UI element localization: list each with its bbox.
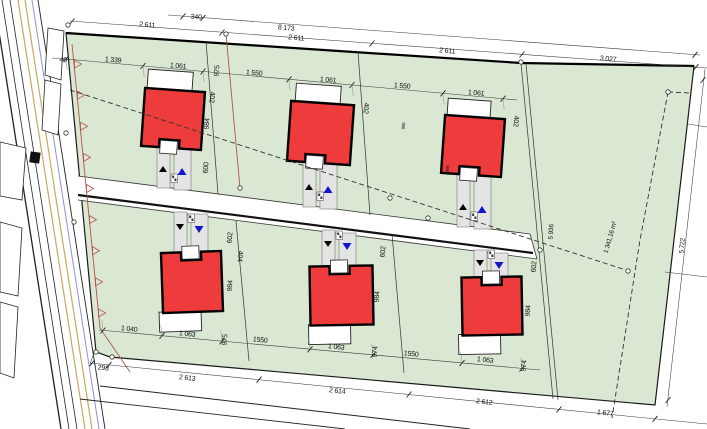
entrance-porch — [330, 260, 347, 273]
utility-box-dot — [318, 194, 320, 197]
utility-box-dot — [491, 255, 493, 258]
dimension-label: 984 — [374, 291, 382, 303]
entrance-porch — [160, 140, 178, 154]
survey-point — [64, 131, 68, 135]
dimension-label: 5 722 — [678, 237, 686, 253]
survey-point — [110, 355, 114, 359]
dimension-label: 2 611 — [288, 34, 305, 42]
dimension-label: 3 027 — [600, 55, 617, 63]
house — [461, 276, 522, 335]
dimension-label: 402 — [207, 91, 215, 103]
dimension-label: 1 339 — [105, 56, 122, 64]
dimension-label: 974 — [372, 346, 380, 358]
survey-point — [72, 220, 76, 224]
dimension-label: 975 — [214, 65, 222, 77]
dimension-label: 2 611 — [139, 21, 156, 29]
utility-box-dot — [191, 219, 193, 222]
utility-box-dot — [474, 217, 476, 220]
dimension-label: 600 — [203, 162, 211, 174]
survey-point — [224, 32, 228, 36]
utility-box-dot — [320, 197, 322, 200]
dimension-label: 402 — [361, 102, 369, 114]
dimension-label: 1 061 — [170, 62, 187, 70]
house — [309, 265, 373, 325]
survey-point — [519, 60, 523, 64]
dimension-label: 5 936 — [547, 223, 555, 239]
survey-point — [388, 196, 392, 200]
dimension-label: 1 550 — [246, 69, 263, 77]
utility-box — [317, 192, 324, 201]
neighbor-parcel — [42, 80, 61, 135]
dimension-label: 298 — [97, 364, 109, 372]
dimension-label: 984 — [227, 280, 235, 292]
utility-box-dot — [174, 179, 176, 182]
dimension-label: 340 — [190, 14, 202, 22]
survey-point — [238, 186, 242, 190]
utility-box-dot — [189, 216, 191, 219]
dimension-label: 975 — [222, 334, 230, 346]
utility-box-dot — [337, 233, 339, 236]
dimension-label: 2 611 — [439, 47, 456, 55]
garage — [458, 334, 500, 355]
dimension-label: 1 061 — [468, 89, 485, 97]
utility-box — [471, 212, 478, 221]
garage — [309, 324, 351, 345]
dimension-label: 985 — [401, 122, 407, 130]
dimension-label: 602 — [227, 232, 235, 244]
dimension-label: 974 — [521, 360, 529, 372]
house — [161, 251, 223, 313]
site-plan-drawing: 3408 1732 6112 6112 6113 027401 3391 061… — [0, 0, 707, 429]
dimension-label: 602 — [380, 246, 388, 258]
dimension-label: 985 — [445, 165, 451, 173]
house — [287, 101, 354, 165]
survey-point — [426, 216, 430, 220]
utility-box — [336, 231, 343, 240]
dimension-label: 1 061 — [320, 76, 337, 84]
survey-point — [94, 350, 98, 354]
entrance-porch — [182, 246, 199, 260]
survey-point — [626, 269, 630, 273]
neighbor-parcel — [45, 28, 64, 80]
dimension-label: 1 550 — [394, 82, 411, 90]
site-plan-page: 3408 1732 6112 6112 6113 027401 3391 061… — [0, 0, 707, 429]
survey-point — [538, 248, 542, 252]
dimension-label: 984 — [525, 305, 533, 317]
utility-box-dot — [489, 252, 491, 255]
dimension-label: 40 — [59, 57, 67, 65]
building-symbol — [29, 151, 40, 163]
utility-box-dot — [472, 214, 474, 217]
dimension-label: 984 — [204, 118, 212, 130]
dimension-label: 404 — [235, 250, 243, 262]
dimension-label: 8 173 — [278, 24, 295, 32]
dimension-label: 602 — [531, 261, 539, 273]
utility-box — [188, 214, 195, 223]
entrance-porch — [460, 167, 478, 181]
neighbor-parcel — [0, 142, 26, 200]
neighbor-parcel — [0, 222, 22, 296]
dimension-label: 402 — [511, 115, 519, 127]
utility-box-dot — [172, 176, 174, 179]
utility-box-dot — [339, 236, 341, 239]
entrance-porch — [482, 271, 499, 284]
survey-point — [66, 23, 70, 27]
utility-box — [171, 174, 178, 183]
survey-point — [666, 90, 670, 94]
utility-box — [488, 250, 495, 259]
